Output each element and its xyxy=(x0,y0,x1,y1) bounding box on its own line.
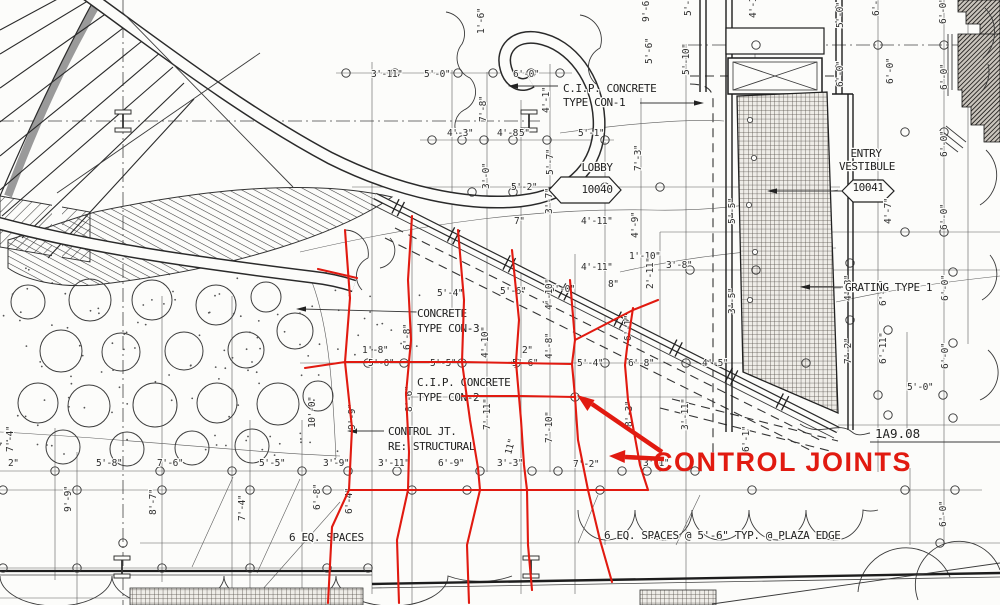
dimension-label: 10'-0" xyxy=(307,397,318,428)
dimension-label: 6'-9" xyxy=(438,458,464,469)
dimension-label: 4'-10" xyxy=(480,327,491,358)
plan-note: 6 EQ. SPACES xyxy=(289,531,364,544)
dimension-label: 6'-0" xyxy=(513,69,539,80)
dimension-label: 5'-4" xyxy=(577,358,603,369)
dimension-label: 5'-0" xyxy=(907,382,933,393)
dimension-label: 5'-5" xyxy=(727,198,738,224)
dimension-label: 5" xyxy=(519,128,529,139)
plan-note: C.I.P. CONCRETE xyxy=(563,82,656,95)
dimension-label: 6'-0" xyxy=(940,343,951,369)
dimension-label: 2'-11" xyxy=(645,258,656,289)
dimension-label: 4'-7" xyxy=(883,198,894,224)
dimension-label: 5'-3" xyxy=(683,0,694,16)
dimension-label: 7'-2" xyxy=(573,459,599,470)
dimension-label: 1'-6" xyxy=(476,8,487,34)
dimension-label: 7'-10" xyxy=(544,412,555,443)
dimension-label: 3'-11" xyxy=(378,458,409,469)
dimension-label: 3'-7" xyxy=(544,188,555,214)
dimension-label: 5'-4" xyxy=(437,288,463,299)
plan-note: TYPE CON-2 xyxy=(417,391,479,404)
dimension-label: 5'-0" xyxy=(424,69,450,80)
dimension-label: 9'-9" xyxy=(63,486,74,512)
dimension-label: 3'-3" xyxy=(497,458,523,469)
plan-note: 10040 xyxy=(581,183,612,196)
dimension-label: 2" xyxy=(522,345,532,356)
dimension-label: 7'-6" xyxy=(157,458,183,469)
dimension-label: 5'-0" xyxy=(835,2,846,28)
dimension-label: 4'-1" xyxy=(541,87,552,113)
dimension-label: 6'-0" xyxy=(835,61,846,87)
plan-note: CONCRETE xyxy=(417,307,467,320)
dimension-label: 9'-6" xyxy=(641,0,652,22)
dimension-label: 4'-9" xyxy=(630,212,641,238)
dimension-label: 3'-11" xyxy=(680,399,691,430)
door-threshold xyxy=(726,28,824,54)
dimension-label: 1'-8" xyxy=(362,345,388,356)
dimension-label: 4'-8" xyxy=(544,333,555,359)
dimension-label: 7'-4" xyxy=(237,495,248,521)
dimension-label: 6'-0" xyxy=(940,275,951,301)
construction-plan: 3'-11"5'-0"6'-0"1'-6"7'-8"4'-1"4'-3"4'-8… xyxy=(0,0,1000,605)
dimension-label: 6'-0" xyxy=(939,204,950,230)
dimension-label: 5'-8" xyxy=(96,458,122,469)
plan-note: LOBBY xyxy=(581,161,613,174)
plan-note: TYPE CON-1 xyxy=(563,96,625,109)
dimension-label: 7'-2" xyxy=(843,338,854,364)
dimension-label: 4'-3" xyxy=(447,128,473,139)
dimension-label: 8'-7" xyxy=(148,489,159,515)
plan-note: CONTROL JT. xyxy=(388,425,456,438)
dimension-label: 5'-6" xyxy=(500,286,526,297)
dimension-label: 5'-10" xyxy=(681,44,692,75)
dimension-label: 4'-11" xyxy=(748,0,759,18)
dimension-label: 7'-8" xyxy=(478,96,489,122)
dimension-label: 6'-4" xyxy=(344,488,355,514)
dimension-label: 3'-11" xyxy=(371,69,402,80)
dimension-label: 6'-0" xyxy=(939,64,950,90)
dimension-label: 5'-5" xyxy=(259,458,285,469)
plan-drawing-canvas: CONTROL JOINTS xyxy=(0,0,1000,605)
dimension-label: 7'-11" xyxy=(482,399,493,430)
dimension-label: 3'-5" xyxy=(727,288,738,314)
dimension-label: 6'-0" xyxy=(871,0,882,16)
control-joints-annotation: CONTROL JOINTS xyxy=(653,447,912,477)
dimension-label: 6'-8" xyxy=(628,358,654,369)
dimension-label: 6'-0" xyxy=(885,58,896,84)
dimension-label: 4'-10" xyxy=(544,279,555,310)
dimension-label: 8" xyxy=(608,279,618,290)
plan-note: VESTIBULE xyxy=(839,160,895,173)
dimension-label: 2" xyxy=(8,458,18,469)
dimension-label: 5'-7" xyxy=(545,149,556,175)
plan-note: 6 EQ. SPACES @ 5'-6" TYP. @ PLAZA EDGE xyxy=(604,529,840,542)
dimension-label: 5'-2" xyxy=(511,182,537,193)
dimension-label: 5'-0" xyxy=(368,358,394,369)
crossed-access-box xyxy=(728,58,822,94)
dimension-label: 6'-11" xyxy=(878,333,889,364)
dimension-label: 3'-0" xyxy=(481,163,492,189)
dimension-label: 4'-11" xyxy=(581,216,612,227)
dimension-label: 6'-0" xyxy=(938,0,949,24)
dimension-label: 7'-3" xyxy=(633,145,644,171)
dimension-label: 4'-11" xyxy=(581,262,612,273)
plan-note: RE: STRUCTURAL xyxy=(388,440,476,453)
dimension-label: 7" xyxy=(514,216,524,227)
dimension-label: 6'-8" xyxy=(312,484,323,510)
plan-note: 10041 xyxy=(852,181,883,194)
dimension-label: 5'-6" xyxy=(644,38,655,64)
plan-note: 1A9.08 xyxy=(875,426,920,441)
dimension-label: 4'-5" xyxy=(702,358,728,369)
red-annotation-text: CONTROL JOINTS xyxy=(653,447,912,477)
dimension-label: 5'-1" xyxy=(578,128,604,139)
dimension-label: 7'-4" xyxy=(5,426,16,452)
dimension-label: 5'-5" xyxy=(430,358,456,369)
plan-note: GRATING TYPE 1 xyxy=(845,281,932,294)
dimension-label: 6'-0" xyxy=(939,131,950,157)
dimension-label: 6'-0" xyxy=(938,501,949,527)
plan-note: TYPE CON-3 xyxy=(417,322,479,335)
dimension-label: 3'-8" xyxy=(666,260,692,271)
plan-note: ENTRY xyxy=(850,147,882,160)
dimension-label: 3'-9" xyxy=(323,458,349,469)
